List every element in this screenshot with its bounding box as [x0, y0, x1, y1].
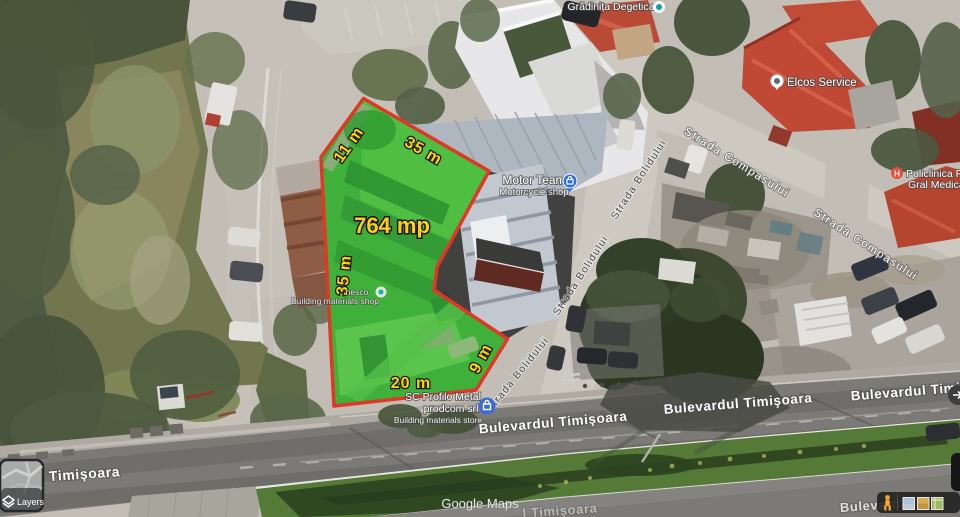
svg-text:Google Maps: Google Maps	[441, 496, 519, 511]
svg-text:20 m: 20 m	[391, 375, 431, 392]
svg-text:Gral Medica: Gral Medica	[908, 179, 960, 191]
svg-text:H: H	[894, 170, 900, 179]
svg-text:SC Profilo Metal: SC Profilo Metal	[405, 391, 481, 403]
svg-text:Motorcycle shop: Motorcycle shop	[499, 187, 568, 198]
svg-text:Building materials shop: Building materials shop	[291, 296, 379, 306]
svg-text:Motor Team: Motor Team	[502, 173, 565, 187]
svg-text:Layers: Layers	[17, 497, 45, 507]
svg-text:Elcos Service: Elcos Service	[787, 77, 857, 89]
svg-text:764 mp: 764 mp	[354, 213, 430, 238]
svg-text:prodcom srl: prodcom srl	[424, 403, 479, 415]
svg-text:Grădinița Degetica: Grădinița Degetica	[568, 1, 655, 13]
svg-text:Building materials store: Building materials store	[394, 415, 483, 425]
